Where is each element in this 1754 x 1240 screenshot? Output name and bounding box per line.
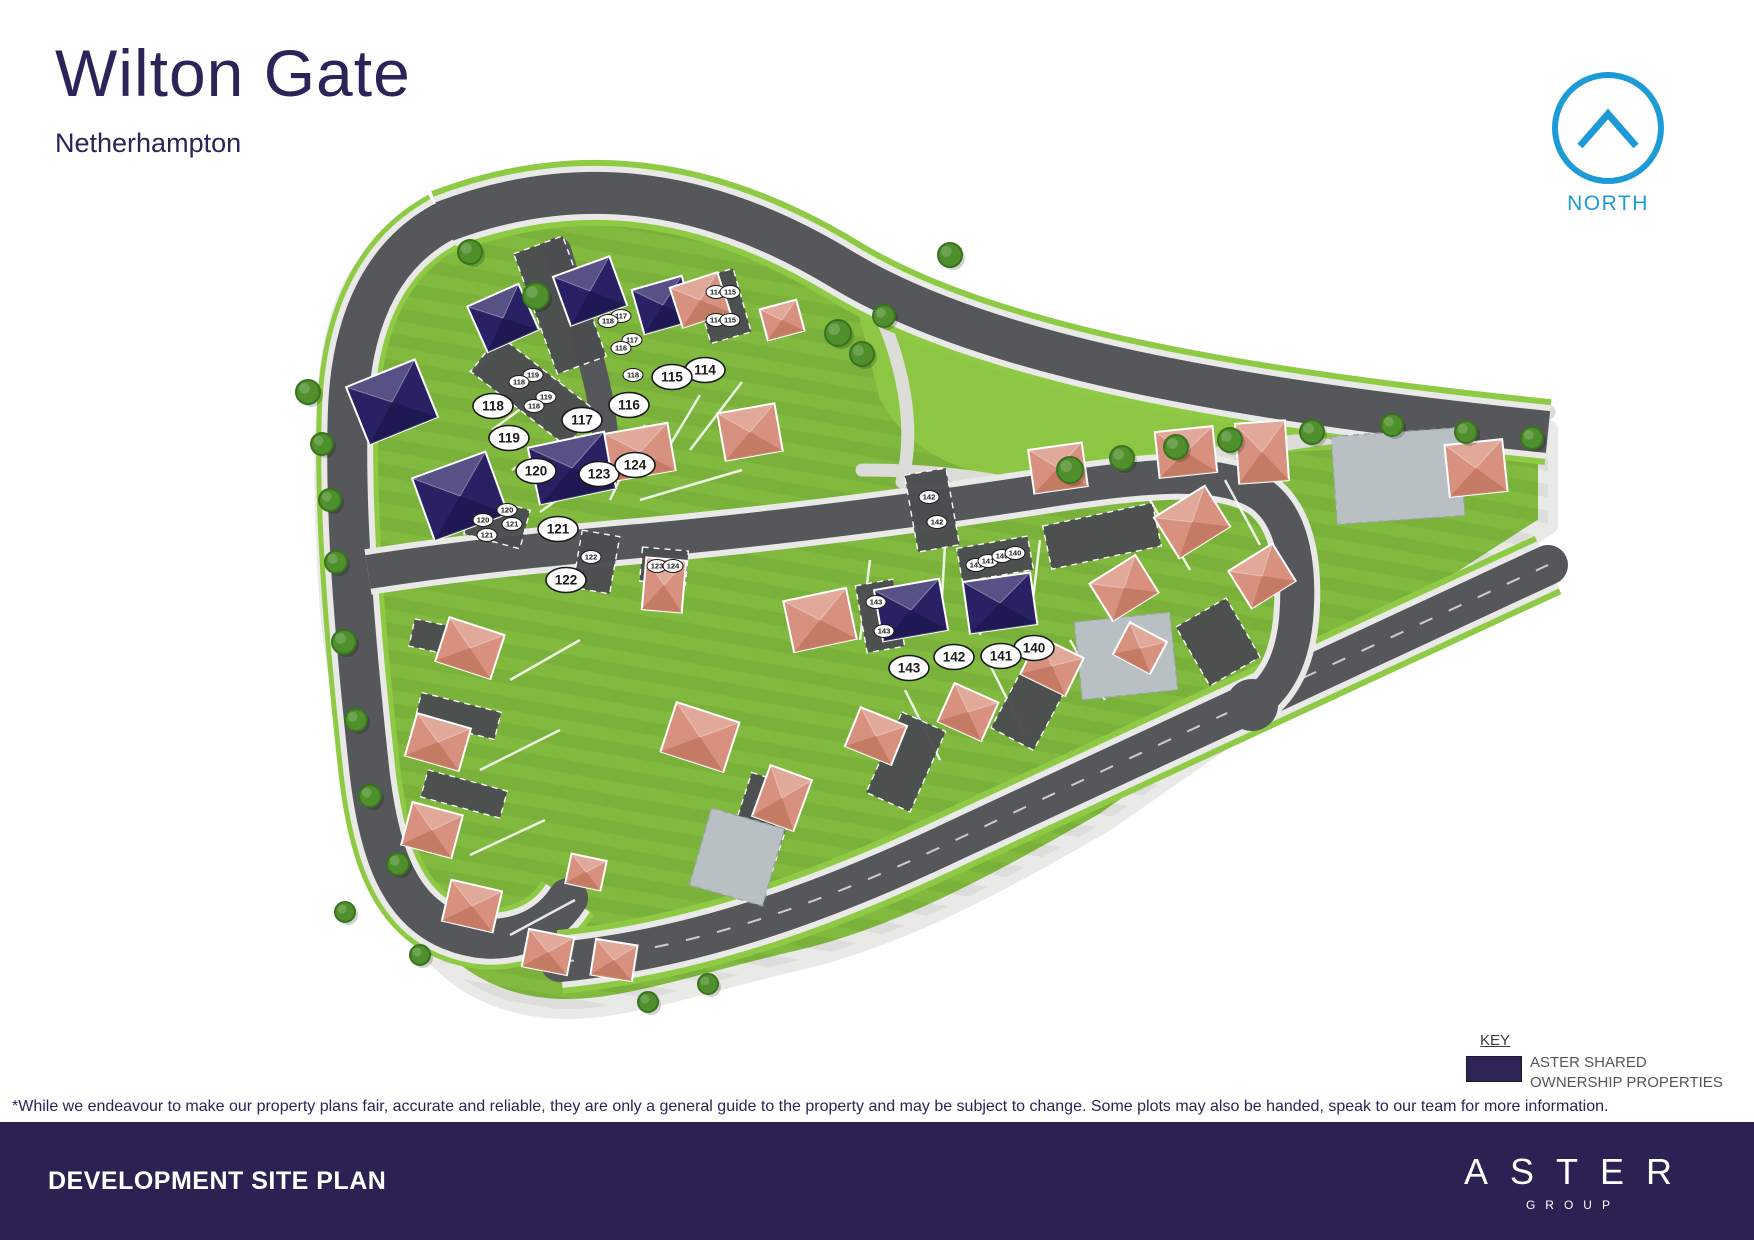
parking-bay-label: 143 (866, 596, 886, 609)
shared-ownership-swatch (1466, 1056, 1522, 1082)
brand-subtitle: GROUP (1442, 1198, 1694, 1212)
map-key: KEY ASTER SHARED OWNERSHIP PROPERTIES (1466, 1032, 1723, 1092)
svg-text:142: 142 (943, 650, 966, 665)
parking-bay-label: 120 (473, 514, 493, 527)
svg-text:115: 115 (724, 288, 736, 297)
svg-text:118: 118 (528, 402, 540, 411)
svg-text:120: 120 (501, 506, 514, 515)
house-private (522, 929, 574, 975)
svg-text:118: 118 (602, 317, 614, 326)
north-compass-icon (1552, 72, 1664, 184)
plot-label: 117 (562, 408, 602, 433)
svg-text:140: 140 (1023, 641, 1046, 656)
svg-text:118: 118 (513, 378, 525, 387)
plot-label: 116 (609, 393, 649, 418)
svg-text:143: 143 (878, 627, 891, 636)
svg-text:116: 116 (618, 398, 640, 413)
parking-bay-label: 118 (623, 369, 643, 382)
plot-label: 141 (981, 644, 1021, 669)
tree-icon (335, 902, 358, 925)
svg-text:141: 141 (990, 649, 1013, 664)
page-title: Wilton Gate (55, 40, 411, 106)
svg-text:121: 121 (547, 522, 570, 537)
svg-text:116: 116 (615, 344, 627, 353)
north-label: NORTH (1548, 192, 1668, 216)
aster-group-logo: ASTER GROUP (1442, 1151, 1694, 1212)
parking-bay-label: 143 (874, 625, 894, 638)
svg-text:114: 114 (694, 363, 716, 378)
key-label-line1: ASTER SHARED (1530, 1053, 1723, 1073)
plot-label: 143 (889, 656, 929, 681)
parking-bay-label: 142 (919, 491, 939, 504)
svg-text:117: 117 (571, 413, 593, 428)
svg-text:119: 119 (498, 431, 520, 446)
svg-text:118: 118 (482, 399, 504, 414)
plot-label: 121 (538, 517, 578, 542)
key-label-line2: OWNERSHIP PROPERTIES (1530, 1073, 1723, 1093)
tree-icon (938, 243, 965, 270)
parking-bay-label: 116 (611, 342, 631, 355)
north-chevron-icon (1570, 98, 1646, 158)
plot-label: 118 (473, 394, 513, 419)
svg-text:115: 115 (724, 316, 736, 325)
house-private (565, 854, 606, 891)
plot-label: 122 (546, 568, 586, 593)
paved-court (1331, 428, 1465, 525)
svg-text:142: 142 (923, 493, 936, 502)
svg-text:121: 121 (506, 520, 519, 529)
house-private (1444, 439, 1507, 497)
svg-text:118: 118 (627, 371, 639, 380)
plot-label: 119 (489, 426, 529, 451)
svg-text:119: 119 (540, 393, 552, 402)
svg-text:122: 122 (555, 573, 578, 588)
parking-bay-label: 121 (502, 518, 522, 531)
svg-text:119: 119 (527, 371, 539, 380)
svg-text:143: 143 (898, 661, 921, 676)
house-private (1235, 420, 1289, 483)
svg-text:123: 123 (588, 467, 611, 482)
svg-text:124: 124 (667, 562, 680, 571)
house-private (717, 403, 782, 460)
svg-text:124: 124 (624, 458, 647, 473)
key-heading: KEY (1480, 1032, 1723, 1049)
page: 1171181171161181141151141151191181191181… (0, 0, 1754, 1240)
header: Wilton Gate Netherhampton (55, 40, 411, 159)
svg-text:123: 123 (651, 562, 664, 571)
svg-text:120: 120 (525, 464, 548, 479)
parking-bay-label: 122 (581, 551, 601, 564)
cul-de-sac (1226, 679, 1278, 731)
svg-text:122: 122 (585, 553, 598, 562)
parking-bay-label: 142 (927, 516, 947, 529)
parking-bay-label: 120 (497, 504, 517, 517)
plot-label: 142 (934, 645, 974, 670)
parking-bay-label: 115 (720, 314, 740, 327)
page-subtitle: Netherhampton (55, 128, 411, 159)
footer-bar: DEVELOPMENT SITE PLAN ASTER GROUP (0, 1122, 1754, 1240)
north-indicator: NORTH (1548, 72, 1668, 216)
svg-text:143: 143 (870, 598, 883, 607)
brand-name: ASTER (1442, 1151, 1694, 1193)
plot-label: 123 (579, 462, 619, 487)
house-shared-ownership (963, 573, 1038, 634)
parking-bay-label: 118 (509, 376, 529, 389)
parking-bay-label: 118 (598, 315, 618, 328)
svg-text:120: 120 (477, 516, 490, 525)
plot-label: 124 (615, 453, 655, 478)
parking-bay-label: 118 (524, 400, 544, 413)
parking-bay-label: 121 (477, 529, 497, 542)
house-private (590, 939, 637, 981)
plot-label: 120 (516, 459, 556, 484)
svg-text:142: 142 (931, 518, 944, 527)
plot-label: 115 (652, 365, 692, 390)
svg-text:121: 121 (481, 531, 494, 540)
parking-bay-label: 140 (1005, 547, 1025, 560)
parking-bay-label: 124 (663, 560, 683, 573)
key-label: ASTER SHARED OWNERSHIP PROPERTIES (1530, 1053, 1723, 1092)
svg-text:115: 115 (661, 370, 683, 385)
footer-title: DEVELOPMENT SITE PLAN (48, 1167, 386, 1196)
svg-text:140: 140 (1009, 549, 1022, 558)
parking-bay-label: 115 (720, 286, 740, 299)
disclaimer-text: *While we endeavour to make our property… (12, 1098, 1742, 1116)
